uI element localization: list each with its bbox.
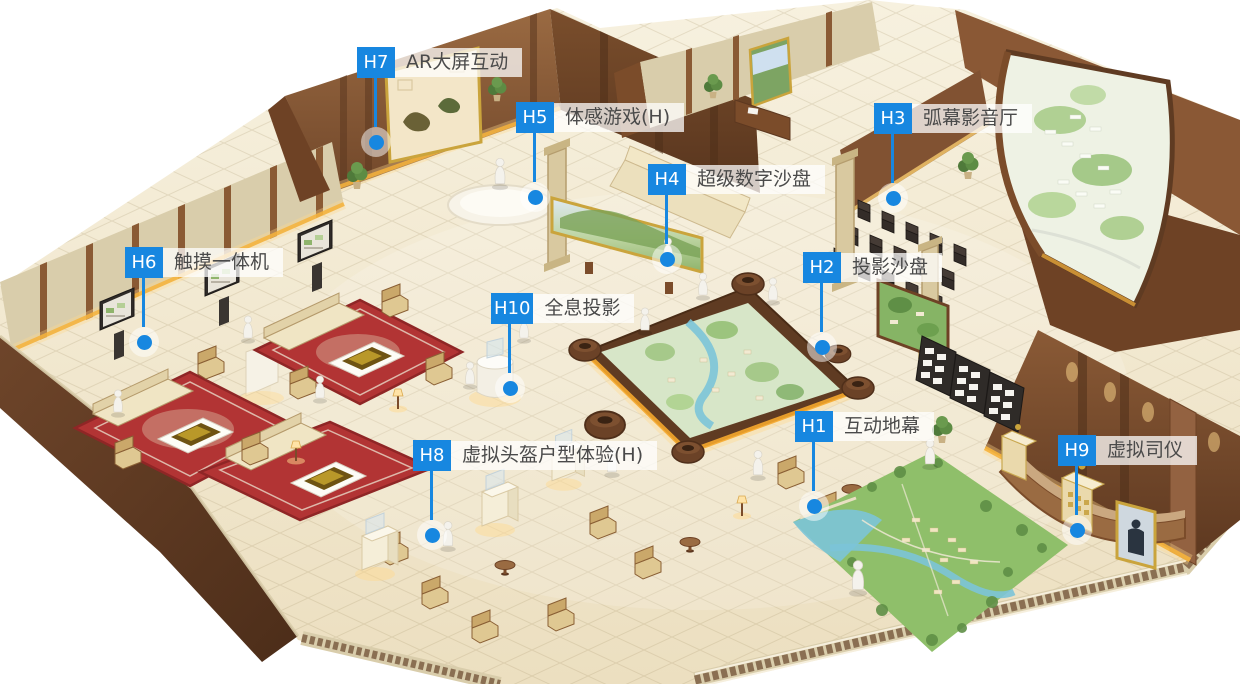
- hotspot-badge[interactable]: H8: [413, 440, 451, 471]
- hotspot-h8[interactable]: H8 虚拟头盔户型体验(H): [413, 440, 657, 550]
- hotspot-dot-core: [1070, 523, 1085, 538]
- hotspot-callout[interactable]: H6 触摸一体机: [125, 247, 283, 278]
- hotspot-stem: [820, 283, 823, 332]
- hotspot-h10[interactable]: H10 全息投影: [491, 293, 634, 403]
- hotspot-label[interactable]: 超级数字沙盘: [686, 165, 825, 194]
- hotspot-label[interactable]: AR大屏互动: [395, 48, 522, 77]
- hotspot-badge[interactable]: H4: [648, 164, 686, 195]
- hotspot-stem: [1075, 466, 1078, 515]
- hotspot-badge[interactable]: H6: [125, 247, 163, 278]
- hotspot-callout[interactable]: H3 弧幕影音厅: [874, 103, 1032, 134]
- hotspot-dot-core: [503, 381, 518, 396]
- hotspot-dot[interactable]: [799, 491, 829, 521]
- hotspot-label[interactable]: 触摸一体机: [163, 248, 283, 277]
- hotspot-stem: [142, 278, 145, 327]
- hotspot-badge[interactable]: H3: [874, 103, 912, 134]
- hotspot-h9[interactable]: H9 虚拟司仪: [1058, 435, 1197, 545]
- hotspot-dot[interactable]: [520, 182, 550, 212]
- hotspot-callout[interactable]: H1 互动地幕: [795, 411, 934, 442]
- hotspot-dot-core: [528, 190, 543, 205]
- hotspot-label[interactable]: 全息投影: [533, 294, 634, 323]
- hotspot-dot[interactable]: [361, 127, 391, 157]
- hotspot-dot-core: [815, 340, 830, 355]
- hotspot-dot-core: [886, 191, 901, 206]
- hotspot-callout[interactable]: H7 AR大屏互动: [357, 47, 522, 78]
- hotspot-badge[interactable]: H9: [1058, 435, 1096, 466]
- hotspot-label[interactable]: 虚拟司仪: [1096, 436, 1197, 465]
- hotspot-label[interactable]: 投影沙盘: [841, 253, 942, 282]
- hotspot-dot[interactable]: [1062, 515, 1092, 545]
- hotspot-badge[interactable]: H2: [803, 252, 841, 283]
- hotspot-badge[interactable]: H5: [516, 102, 554, 133]
- hotspot-badge[interactable]: H1: [795, 411, 833, 442]
- hotspot-label[interactable]: 弧幕影音厅: [912, 104, 1032, 133]
- hotspot-dot[interactable]: [807, 332, 837, 362]
- hotspot-dot[interactable]: [417, 520, 447, 550]
- hotspot-dot-core: [807, 499, 822, 514]
- hotspot-stem: [665, 195, 668, 244]
- hotspot-dot[interactable]: [495, 373, 525, 403]
- hotspot-dot[interactable]: [129, 327, 159, 357]
- hotspot-h7[interactable]: H7 AR大屏互动: [357, 47, 522, 157]
- hotspot-dot[interactable]: [878, 183, 908, 213]
- hotspot-stem: [812, 442, 815, 491]
- hotspot-h2[interactable]: H2 投影沙盘: [803, 252, 942, 362]
- hotspot-h4[interactable]: H4 超级数字沙盘: [648, 164, 825, 274]
- hotspot-label[interactable]: 互动地幕: [833, 412, 934, 441]
- hotspot-callout[interactable]: H5 体感游戏(H): [516, 102, 684, 133]
- hotspot-callout[interactable]: H2 投影沙盘: [803, 252, 942, 283]
- exhibition-hall-map: { "scene": { "description": "3D isometri…: [0, 0, 1240, 684]
- hotspot-callout[interactable]: H8 虚拟头盔户型体验(H): [413, 440, 657, 471]
- hotspot-stem: [430, 471, 433, 520]
- hotspot-callout[interactable]: H4 超级数字沙盘: [648, 164, 825, 195]
- hotspot-badge[interactable]: H7: [357, 47, 395, 78]
- hotspot-dot-core: [369, 135, 384, 150]
- hotspot-stem: [374, 78, 377, 127]
- hotspot-label[interactable]: 虚拟头盔户型体验(H): [451, 441, 657, 470]
- hotspot-callout[interactable]: H9 虚拟司仪: [1058, 435, 1197, 466]
- hotspot-h1[interactable]: H1 互动地幕: [795, 411, 934, 521]
- hotspot-stem: [508, 324, 511, 373]
- hotspot-dot-core: [425, 528, 440, 543]
- hotspot-h6[interactable]: H6 触摸一体机: [125, 247, 283, 357]
- hotspot-dot[interactable]: [652, 244, 682, 274]
- hotspot-label[interactable]: 体感游戏(H): [554, 103, 684, 132]
- hotspot-dot-core: [660, 252, 675, 267]
- hotspot-stem: [533, 133, 536, 182]
- hotspot-dot-core: [137, 335, 152, 350]
- hotspot-callout[interactable]: H10 全息投影: [491, 293, 634, 324]
- hotspot-badge[interactable]: H10: [491, 293, 533, 324]
- hotspot-h3[interactable]: H3 弧幕影音厅: [874, 103, 1032, 213]
- hotspot-stem: [891, 134, 894, 183]
